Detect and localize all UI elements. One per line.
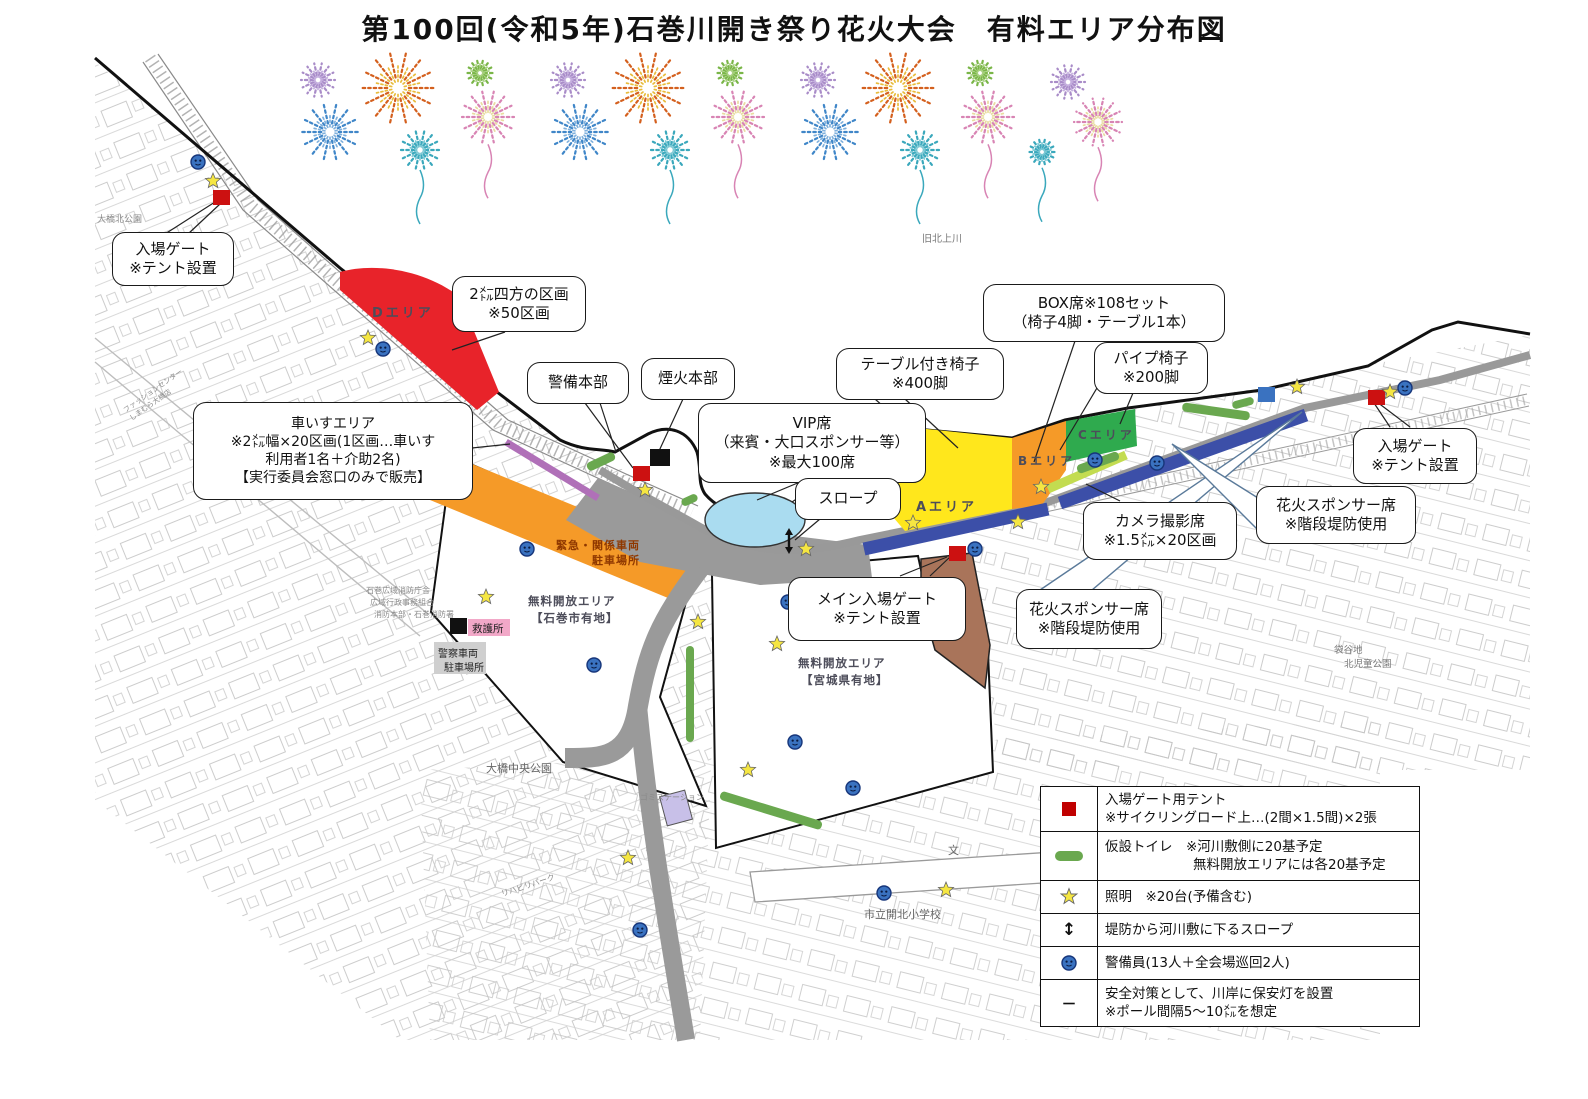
legend-table: 入場ゲート用テント ※サイクリングロード上…(2間×1.5間)×2張 仮設トイレ… bbox=[1040, 786, 1420, 1027]
callout-gate-left: 入場ゲート ※テント設置 bbox=[112, 232, 234, 286]
lighting-star-icon bbox=[1041, 881, 1098, 913]
toilet-strip bbox=[686, 646, 694, 742]
fire-dept-label-1: 石巻広域消防庁舎 bbox=[366, 585, 430, 596]
callout-security-hq: 警備本部 bbox=[527, 362, 629, 404]
callout-table-chairs: テーブル付き椅子 ※400脚 bbox=[836, 348, 1004, 400]
callout-line: 花火スポンサー席 bbox=[1276, 496, 1396, 516]
legend-text: ※サイクリングロード上…(2間×1.5間)×2張 bbox=[1105, 809, 1412, 827]
callout-line: ※テント設置 bbox=[1371, 456, 1459, 476]
pyro-hq-marker bbox=[650, 449, 670, 466]
fire-dept-label-2: 広域行政事務組合 bbox=[370, 597, 434, 608]
police-parking-label-1: 警察車両 bbox=[438, 645, 478, 660]
fire-dept-label-3: 消防本部・石巻消防署 bbox=[374, 609, 454, 620]
guard-marker bbox=[376, 342, 390, 356]
gate-tent-marker bbox=[1368, 390, 1385, 405]
central-park-label: 大橋中央公園 bbox=[486, 760, 552, 776]
callout-box-seats: BOX席※108セット （椅子4脚・テーブル1本） bbox=[983, 284, 1225, 342]
gate-tent-marker bbox=[949, 546, 966, 561]
callout-line: ※階段堤防使用 bbox=[1285, 515, 1388, 535]
callout-line: 煙火本部 bbox=[658, 369, 718, 389]
callout-line: パイプ椅子 bbox=[1113, 349, 1188, 369]
legend-text: 警備員(13人＋全会場巡回2人) bbox=[1105, 954, 1412, 972]
kita-park-label-1: 袋谷地 bbox=[1334, 642, 1363, 656]
callout-slope: スロープ bbox=[795, 478, 901, 520]
guard-marker bbox=[788, 735, 802, 749]
guard-marker bbox=[633, 923, 647, 937]
guard-marker bbox=[1150, 456, 1164, 470]
slope-arrow-icon: ↕ bbox=[1041, 914, 1098, 946]
callout-line: （来賓・大口スポンサー等） bbox=[714, 433, 909, 453]
legend-text: 無料開放エリアには各20基予定 bbox=[1105, 856, 1412, 874]
kita-park-label-2: 北児童公園 bbox=[1344, 656, 1392, 670]
callout-line: 【実行委員会窓口のみで販売】 bbox=[235, 469, 431, 487]
rescue-station-label: 救護所 bbox=[470, 621, 506, 636]
callout-sponsor-center: 花火スポンサー席 ※階段堤防使用 bbox=[1016, 589, 1162, 649]
gate-tent-marker bbox=[213, 190, 230, 205]
school-label: 市立開北小学校 bbox=[864, 906, 941, 922]
free-area-east-label-2: 【宮城県有地】 bbox=[801, 672, 889, 688]
callout-line: カメラ撮影席 bbox=[1115, 512, 1205, 532]
gate-tent-marker bbox=[633, 466, 650, 481]
callout-line: 花火スポンサー席 bbox=[1029, 600, 1149, 620]
legend-text: 安全対策として、川岸に保安灯を設置 bbox=[1105, 985, 1412, 1003]
area-a-label: Aエリア bbox=[916, 496, 977, 515]
rescue-black-box bbox=[450, 618, 467, 634]
callout-line: ※階段堤防使用 bbox=[1038, 619, 1141, 639]
legend-row-safety-light: － 安全対策として、川岸に保安灯を設置 ※ポール間隔5～10㍍を想定 bbox=[1041, 980, 1419, 1026]
callout-line: ※テント設置 bbox=[129, 259, 217, 279]
callout-line: （椅子4脚・テーブル1本） bbox=[1012, 313, 1195, 333]
guard-marker bbox=[846, 781, 860, 795]
emergency-parking-label-1: 緊急・関係車両 bbox=[556, 537, 640, 553]
river-label: 旧北上川 bbox=[922, 230, 962, 245]
emergency-parking-label-2: 駐車場所 bbox=[592, 552, 640, 568]
callout-line: メイン入場ゲート bbox=[817, 590, 937, 610]
gate-tent-icon bbox=[1041, 787, 1098, 831]
legend-row-lighting: 照明 ※20台(予備含む) bbox=[1041, 881, 1419, 914]
callout-line: 警備本部 bbox=[548, 373, 608, 393]
garbage-station-label: ゴミステーション bbox=[640, 792, 704, 803]
safety-light-dash-icon: － bbox=[1041, 980, 1098, 1026]
park-nw-label: 大橋北公園 bbox=[97, 212, 142, 225]
area-d-label: Dエリア bbox=[372, 302, 434, 321]
toilet-icon bbox=[1041, 832, 1098, 880]
free-area-east-label-1: 無料開放エリア bbox=[798, 655, 886, 671]
callout-line: ※50区画 bbox=[488, 304, 550, 324]
callout-line: ※最大100席 bbox=[769, 453, 855, 473]
page-title: 第100回(令和5年)石巻川開き祭り花火大会 有料エリア分布図 bbox=[0, 8, 1588, 48]
callout-line: スロープ bbox=[818, 489, 877, 509]
callout-line: ※400脚 bbox=[892, 374, 948, 394]
callout-line: ※テント設置 bbox=[833, 609, 921, 629]
guard-marker bbox=[1398, 381, 1412, 395]
guard-marker bbox=[587, 658, 601, 672]
area-c-label: Cエリア bbox=[1078, 426, 1135, 443]
festival-area-map-page: 第100回(令和5年)石巻川開き祭り花火大会 有料エリア分布図 旧北上川 大橋北… bbox=[0, 0, 1588, 1099]
legend-row-slope: ↕ 堤防から河川敷に下るスロープ bbox=[1041, 914, 1419, 947]
area-b-label: Bエリア bbox=[1018, 452, 1075, 469]
callout-d-block: 2㍍四方の区画 ※50区画 bbox=[452, 276, 586, 332]
callout-wheelchair: 車いすエリア ※2㍍幅×20区画(1区画…車いす 利用者1名＋介助2名) 【実行… bbox=[193, 402, 473, 500]
guard-marker bbox=[877, 886, 891, 900]
callout-line: 入場ゲート bbox=[1377, 437, 1452, 457]
callout-line: 2㍍四方の区画 bbox=[469, 285, 569, 305]
blue-square-marker bbox=[1258, 387, 1275, 402]
callout-line: VIP席 bbox=[793, 414, 832, 434]
callout-pipe-chairs: パイプ椅子 ※200脚 bbox=[1094, 342, 1208, 394]
callout-line: テーブル付き椅子 bbox=[860, 355, 979, 375]
callout-line: 車いすエリア bbox=[291, 415, 375, 433]
guard-marker bbox=[968, 542, 982, 556]
callout-line: ※2㍍幅×20区画(1区画…車いす bbox=[231, 433, 436, 451]
school-mark: 文 bbox=[948, 842, 959, 858]
callout-line: 利用者1名＋介助2名) bbox=[265, 451, 400, 469]
free-area-west-label-1: 無料開放エリア bbox=[528, 593, 616, 609]
legend-text: 堤防から河川敷に下るスロープ bbox=[1105, 921, 1412, 939]
guard-icon bbox=[1041, 947, 1098, 979]
free-area-west-label-2: 【石巻市有地】 bbox=[531, 610, 619, 626]
legend-text: 仮設トイレ ※河川敷側に20基予定 bbox=[1105, 838, 1412, 856]
callout-sponsor-right: 花火スポンサー席 ※階段堤防使用 bbox=[1256, 486, 1416, 544]
legend-row-gate-tent: 入場ゲート用テント ※サイクリングロード上…(2間×1.5間)×2張 bbox=[1041, 787, 1419, 832]
legend-text: 照明 ※20台(予備含む) bbox=[1105, 888, 1412, 906]
callout-gate-right: 入場ゲート ※テント設置 bbox=[1353, 428, 1477, 484]
guard-marker bbox=[520, 542, 534, 556]
callout-line: ※1.5㍍×20区画 bbox=[1103, 531, 1216, 551]
legend-text: 入場ゲート用テント bbox=[1105, 791, 1412, 809]
guard-marker bbox=[1088, 453, 1102, 467]
guard-marker bbox=[191, 155, 205, 169]
callout-line: ※200脚 bbox=[1123, 368, 1179, 388]
callout-pyro-hq: 煙火本部 bbox=[641, 358, 735, 400]
legend-row-toilet: 仮設トイレ ※河川敷側に20基予定 無料開放エリアには各20基予定 bbox=[1041, 832, 1419, 881]
callout-main-gate: メイン入場ゲート ※テント設置 bbox=[788, 577, 966, 641]
callout-vip: VIP席 （来賓・大口スポンサー等） ※最大100席 bbox=[698, 403, 926, 483]
callout-line: 入場ゲート bbox=[135, 240, 210, 260]
police-parking-label-2: 駐車場所 bbox=[444, 659, 484, 674]
callout-camera: カメラ撮影席 ※1.5㍍×20区画 bbox=[1083, 502, 1237, 560]
legend-row-guard: 警備員(13人＋全会場巡回2人) bbox=[1041, 947, 1419, 980]
callout-line: BOX席※108セット bbox=[1038, 294, 1170, 314]
legend-text: ※ポール間隔5～10㍍を想定 bbox=[1105, 1003, 1412, 1021]
